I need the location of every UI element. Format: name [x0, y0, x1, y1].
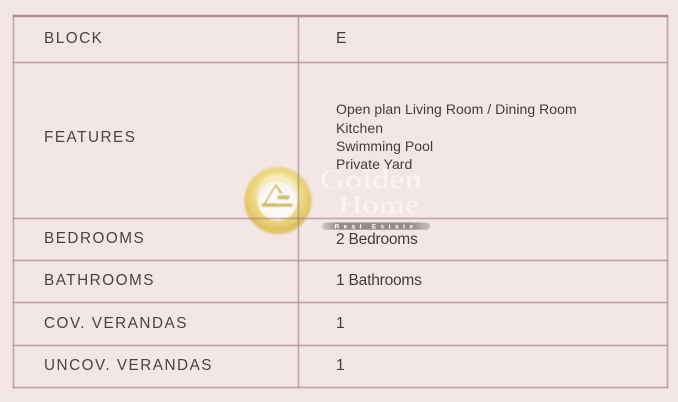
svg-text:Home: Home — [339, 192, 420, 219]
svg-text:Real Estate: Real Estate — [335, 224, 418, 231]
